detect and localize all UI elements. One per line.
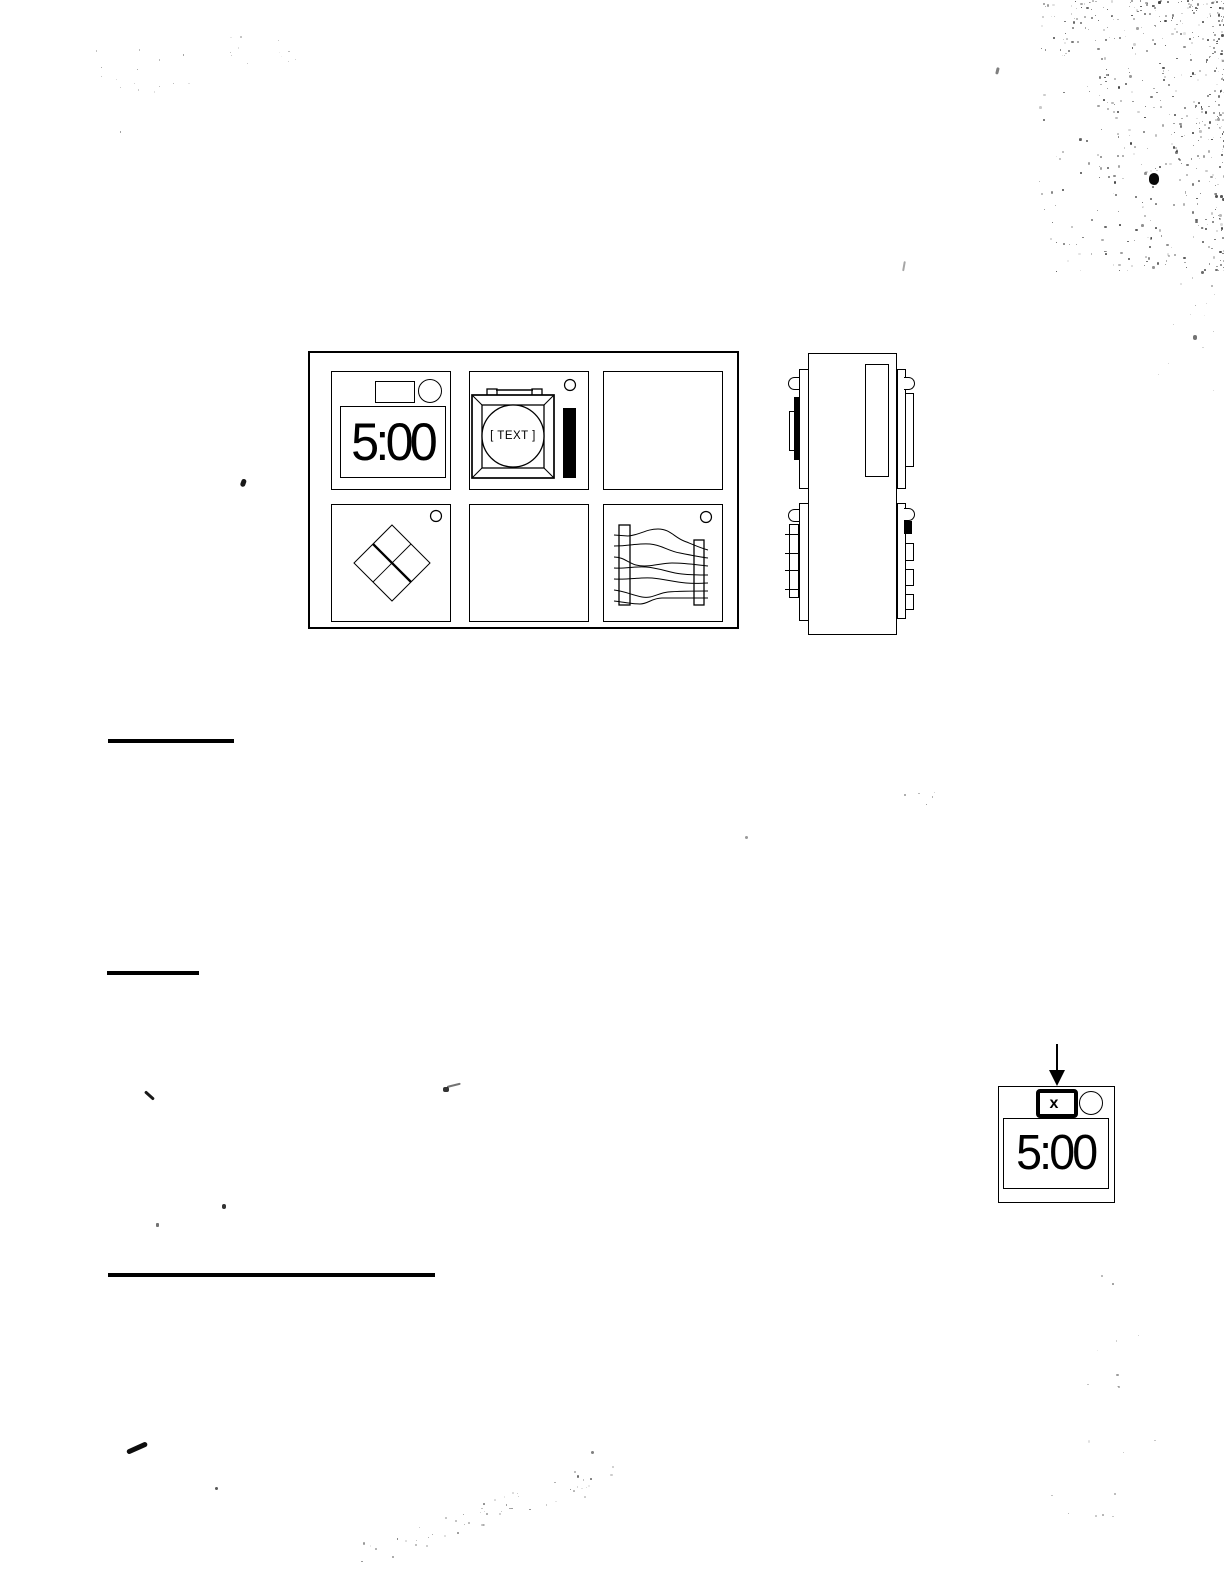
strip-tick xyxy=(785,534,799,535)
watch-face-panel-digital: 5:00 xyxy=(331,371,451,490)
top-button-rect xyxy=(375,381,415,403)
scan-noise-layer xyxy=(0,0,1224,1584)
watch-grid-figure: 5:00 [ TEXT ] xyxy=(308,351,739,629)
dial-placeholder-text: [ TEXT ] xyxy=(483,430,543,443)
digital-display: 5:00 xyxy=(340,406,446,478)
x-button-label: x xyxy=(1050,1096,1059,1112)
strip-tick xyxy=(785,589,799,590)
side-small-button xyxy=(905,543,914,561)
watch-face-panel-blank-2 xyxy=(469,504,589,622)
callout-figure: x 5:00 xyxy=(990,1040,1130,1210)
side-button-bump-icon xyxy=(904,377,915,390)
strip-tick xyxy=(785,570,799,571)
crown-circle-icon xyxy=(418,379,442,403)
callout-time-text: 5:00 xyxy=(1016,1129,1095,1178)
watch-face-panel-blank-1 xyxy=(603,371,723,490)
side-small-button xyxy=(905,594,914,610)
heading-underline-2 xyxy=(107,971,199,975)
indicator-dot-icon xyxy=(565,380,576,391)
scanned-document-page: 5:00 [ TEXT ] xyxy=(0,0,1224,1584)
strip-tick xyxy=(785,553,799,554)
side-black-square xyxy=(904,521,912,534)
side-view-figure xyxy=(786,351,920,643)
callout-arrow-head-icon xyxy=(1049,1070,1065,1086)
side-long-button xyxy=(905,393,914,467)
side-button-bump-icon xyxy=(904,508,915,521)
side-small-button xyxy=(905,569,914,586)
heading-underline-3 xyxy=(108,1273,435,1277)
callout-x-button: x xyxy=(1036,1089,1078,1118)
callout-digital-display: 5:00 xyxy=(1003,1118,1109,1189)
black-bar xyxy=(563,408,576,478)
callout-crown-circle-icon xyxy=(1079,1091,1103,1115)
watch-face-panel-squiggle xyxy=(603,504,723,622)
indicator-dot-icon xyxy=(431,511,442,522)
callout-arrow-stem xyxy=(1056,1044,1059,1072)
side-screen-window xyxy=(865,364,889,477)
squiggle-traces-drawing xyxy=(604,505,721,620)
side-button-bump-icon xyxy=(788,509,799,522)
heading-underline-1 xyxy=(108,739,234,743)
indicator-dot-icon xyxy=(701,512,712,523)
watch-face-panel-diamond xyxy=(331,504,451,622)
side-button-bump-icon xyxy=(788,377,799,390)
watch-face-panel-framed-dial: [ TEXT ] xyxy=(469,371,589,490)
time-text: 5:00 xyxy=(352,416,435,469)
diamond-pattern-drawing xyxy=(332,505,449,620)
side-black-bar xyxy=(794,397,799,460)
